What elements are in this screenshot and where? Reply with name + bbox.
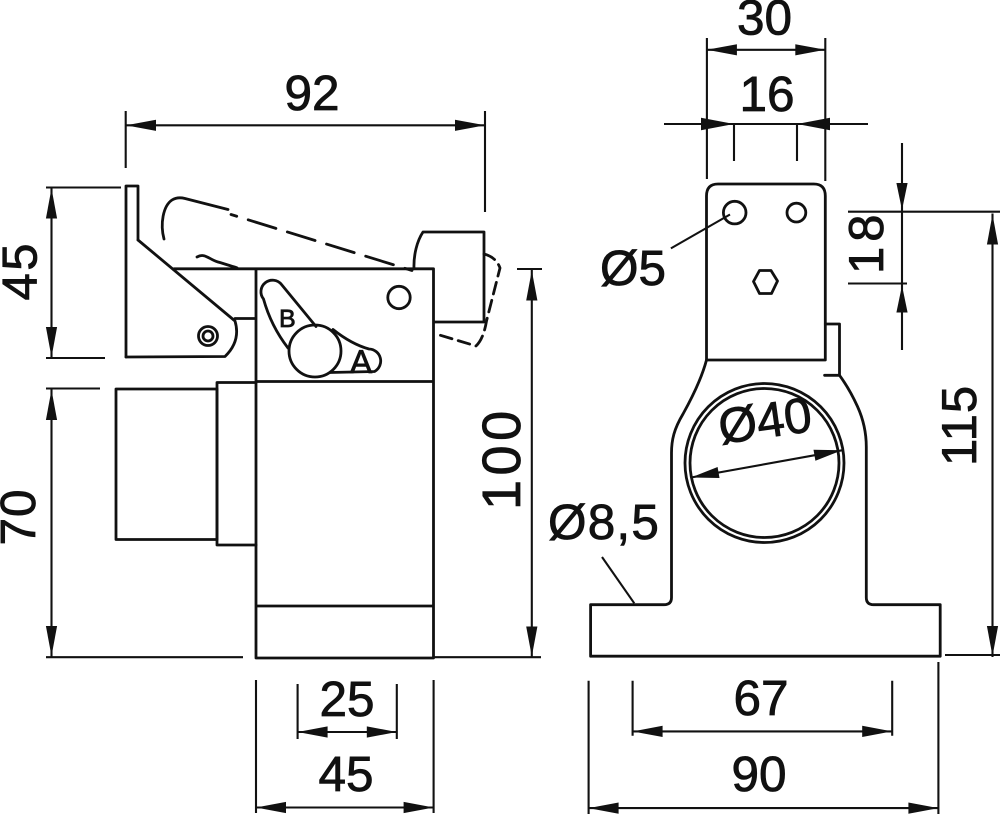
svg-text:Ø8,5: Ø8,5	[548, 495, 660, 550]
svg-text:45: 45	[318, 747, 373, 802]
svg-text:90: 90	[731, 747, 786, 802]
svg-text:100: 100	[472, 406, 532, 510]
svg-text:30: 30	[737, 0, 792, 46]
svg-text:16: 16	[739, 67, 794, 122]
svg-text:92: 92	[284, 66, 339, 121]
svg-text:25: 25	[319, 672, 374, 727]
svg-text:70: 70	[0, 488, 46, 545]
svg-text:67: 67	[733, 671, 788, 726]
svg-text:B: B	[279, 305, 296, 333]
svg-text:Ø5: Ø5	[600, 241, 666, 296]
svg-text:45: 45	[0, 241, 48, 301]
svg-text:A: A	[350, 343, 372, 380]
svg-text:18: 18	[840, 209, 894, 274]
svg-text:115: 115	[933, 385, 987, 466]
